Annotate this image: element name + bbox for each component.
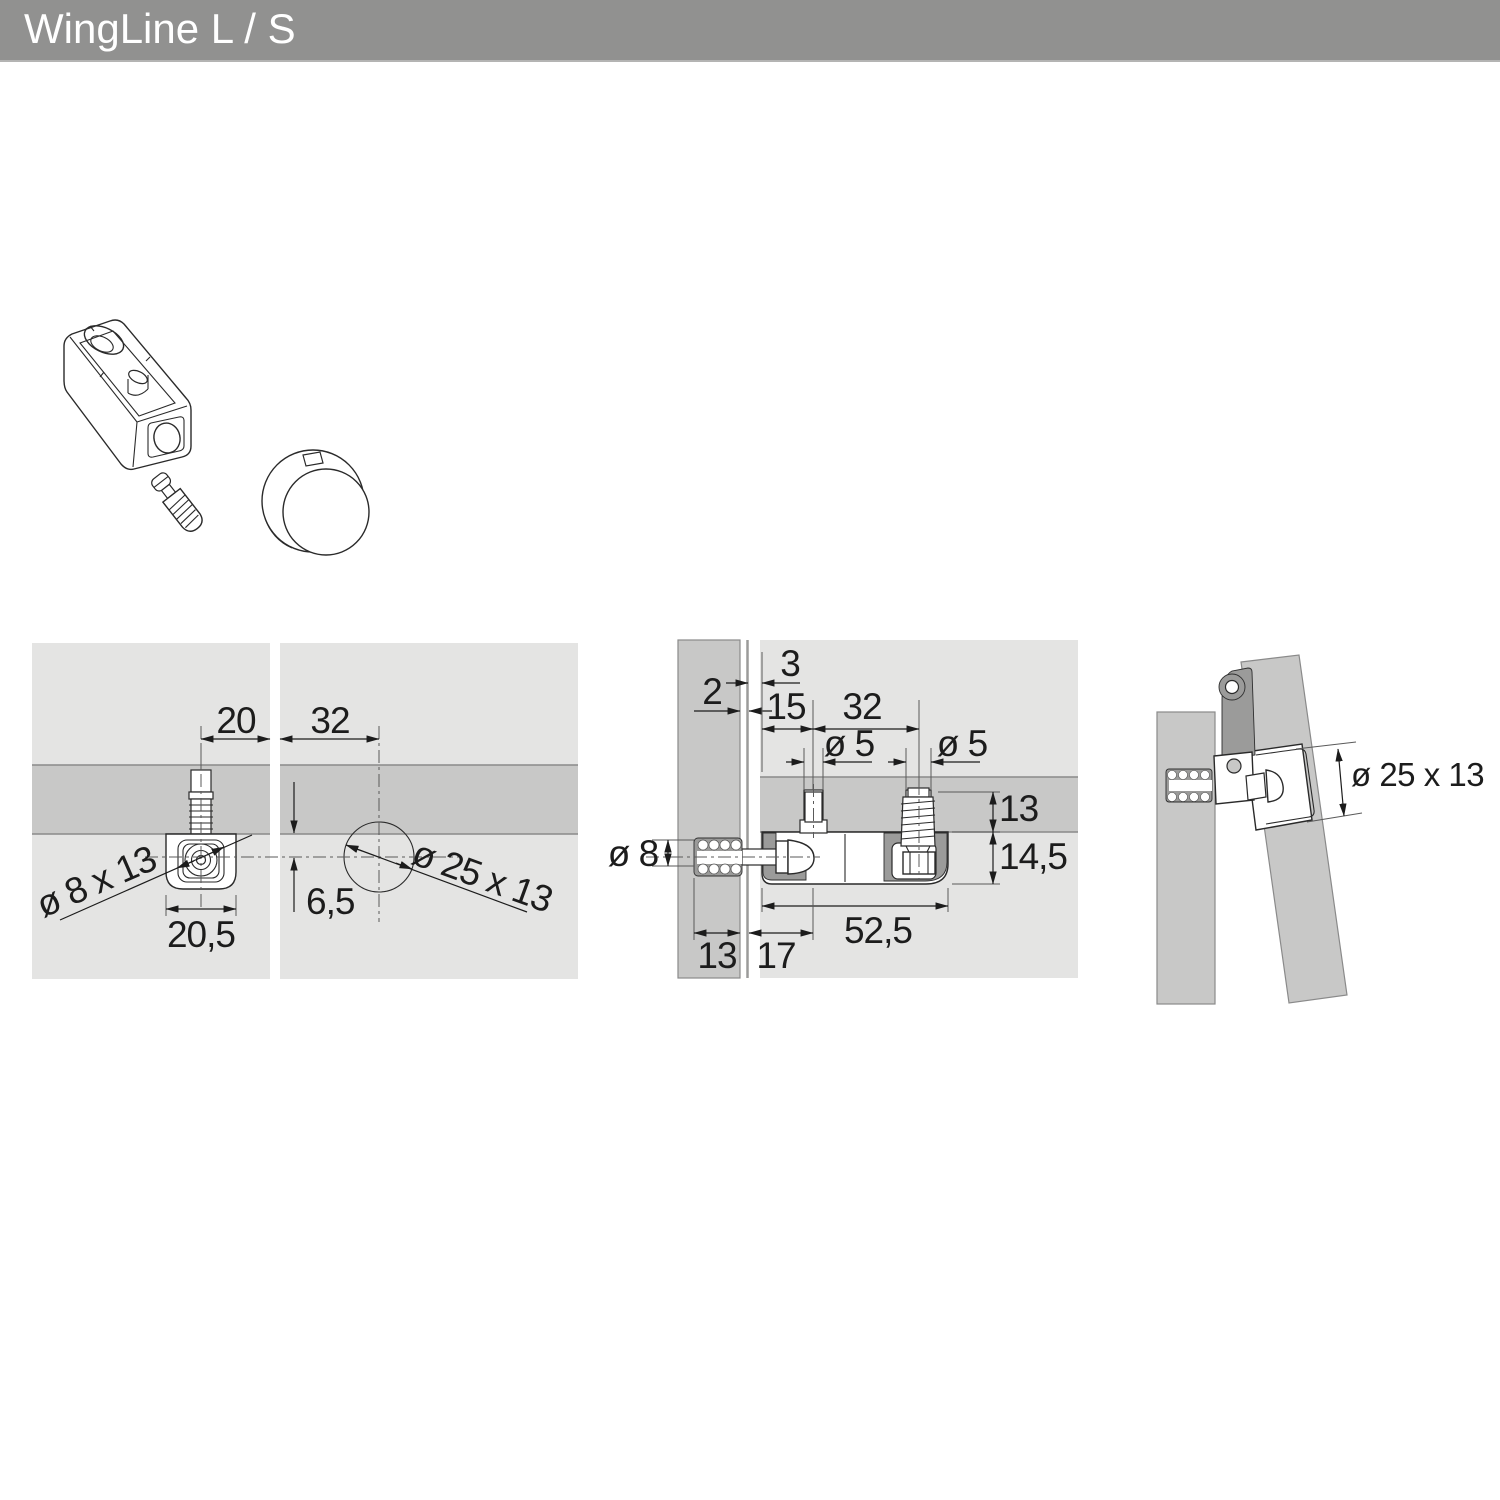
front-view-panels — [32, 643, 578, 979]
title-bar: WingLine L / S — [0, 0, 1500, 62]
dim-label-3: 3 — [780, 643, 800, 684]
bolt-shaft — [1246, 773, 1266, 800]
dim-label-13-right: 13 — [999, 788, 1038, 829]
section-view-drawing: 2 3 15 32 ø 5 ø 5 13 14,5 ø 8 52,5 — [600, 638, 1100, 988]
dim-label-2: 2 — [702, 671, 722, 712]
dim-label-32: 32 — [310, 700, 349, 741]
dim-label-52-5: 52,5 — [844, 910, 912, 951]
dim-label-dia8: ø 8 — [608, 833, 658, 874]
door-gap — [270, 643, 280, 979]
euro-screw-section — [901, 782, 935, 880]
dim-label-dia5-right: ø 5 — [937, 723, 988, 764]
dim-label-13-bottom: 13 — [697, 935, 736, 976]
dim-label-32-section: 32 — [842, 686, 881, 727]
dim-label-dia5-left: ø 5 — [824, 723, 875, 764]
isometric-parts-drawing — [40, 300, 390, 570]
cabinet-panel — [1157, 712, 1215, 1004]
dim-label-17: 17 — [756, 935, 795, 976]
page-title: WingLine L / S — [0, 0, 1500, 50]
cover-cap-isometric — [262, 450, 369, 555]
side-view-dimensions: ø 25 x 13 — [1296, 742, 1484, 822]
dowel-sleeve-side — [1166, 769, 1212, 802]
dim-label-15: 15 — [766, 686, 806, 727]
dim-label-dia25x13-side: ø 25 x 13 — [1351, 756, 1484, 793]
side-view-drawing: ø 25 x 13 — [1130, 640, 1490, 1010]
dim-label-6-5: 6,5 — [306, 881, 355, 922]
front-view-drawing: 20 32 6,5 20,5 ø 8 x 13 ø 25 x 13 — [25, 638, 595, 988]
connector-block-isometric — [64, 320, 191, 469]
dim-label-14-5: 14,5 — [999, 836, 1067, 877]
dim-label-20-5: 20,5 — [167, 914, 235, 955]
euro-screw-isometric — [148, 470, 206, 536]
dim-label-20: 20 — [216, 700, 256, 741]
